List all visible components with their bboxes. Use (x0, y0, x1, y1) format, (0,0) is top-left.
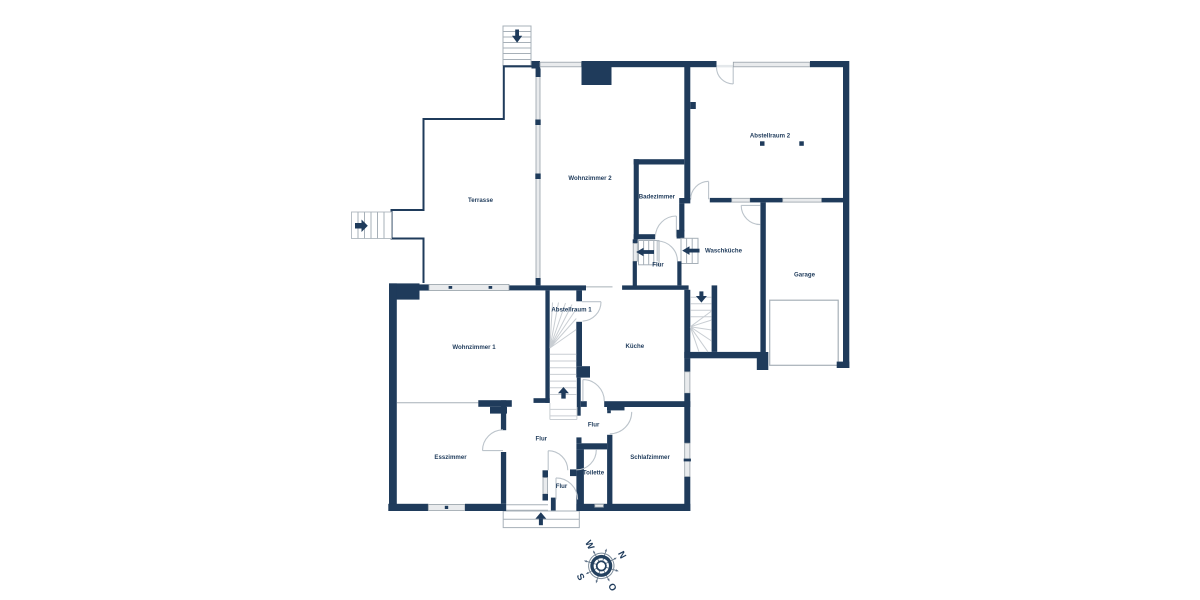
svg-text:Esszimmer: Esszimmer (434, 454, 467, 461)
svg-text:Schlafzimmer: Schlafzimmer (630, 454, 670, 461)
svg-text:Garage: Garage (794, 271, 816, 278)
svg-text:Flur: Flur (536, 435, 548, 442)
svg-text:Abstellraum 2: Abstellraum 2 (750, 133, 791, 140)
svg-text:Flur: Flur (588, 422, 600, 429)
svg-text:Wohnzimmer 1: Wohnzimmer 1 (452, 344, 496, 351)
svg-text:Badezimmer: Badezimmer (639, 194, 676, 201)
svg-text:Abstellraum 1: Abstellraum 1 (551, 307, 592, 314)
svg-text:Waschküche: Waschküche (705, 247, 743, 254)
svg-text:Küche: Küche (625, 343, 644, 350)
svg-text:Toilette: Toilette (583, 470, 605, 477)
svg-text:Wohnzimmer 2: Wohnzimmer 2 (568, 175, 612, 182)
svg-text:Flur: Flur (652, 261, 664, 268)
svg-text:Terrasse: Terrasse (468, 197, 494, 204)
svg-text:Flur: Flur (556, 483, 568, 490)
